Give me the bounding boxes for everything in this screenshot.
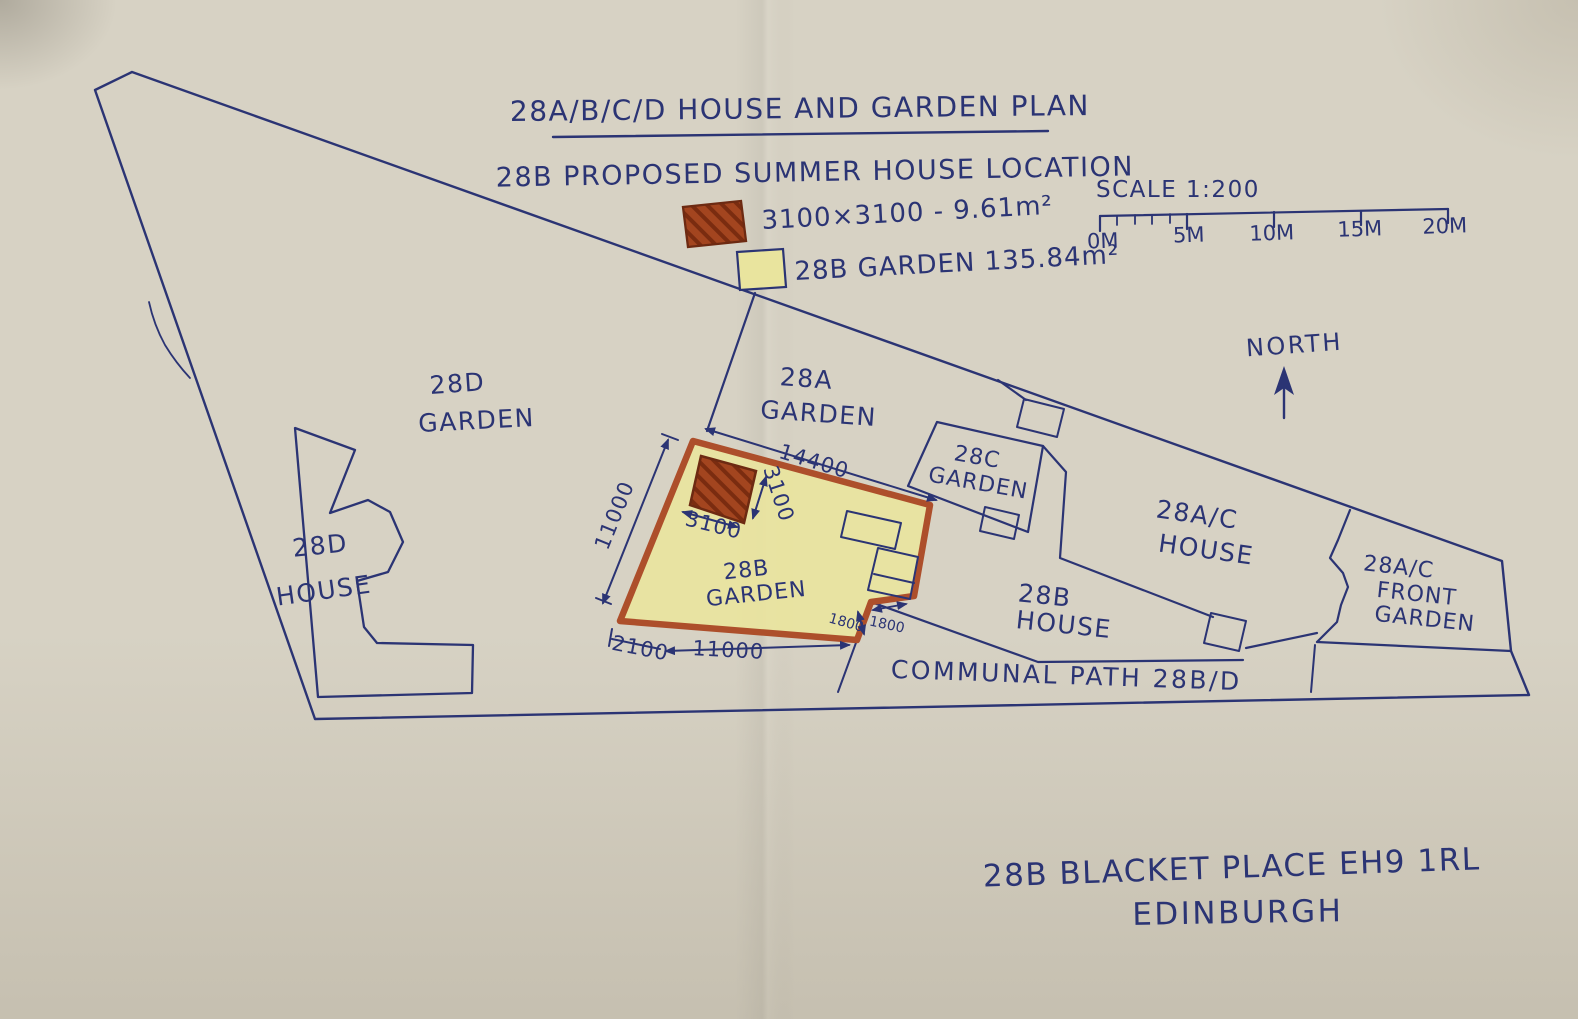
legend-garden-swatch xyxy=(737,249,786,290)
dim-garden-bottom: 11000 xyxy=(692,636,765,664)
plan-photo: 14400 11000 3100 3100 2100 11000 1800 18… xyxy=(0,0,1578,1019)
site-plan-drawing: 14400 11000 3100 3100 2100 11000 1800 18… xyxy=(0,0,1578,1019)
label-28a-garden: 28A xyxy=(779,362,834,395)
scale-tick-5: 5M xyxy=(1173,222,1205,247)
label-28d-house: 28D xyxy=(291,528,349,563)
scale-tick-0: 0M xyxy=(1087,228,1119,253)
address-line2: EDINBURGH xyxy=(1132,893,1344,933)
scale-label: SCALE 1:200 xyxy=(1096,177,1260,203)
scale-tick-10: 10M xyxy=(1249,220,1295,246)
scale-tick-15: 15M xyxy=(1337,216,1383,242)
scale-tick-20: 20M xyxy=(1422,213,1468,239)
label-28d-garden-2: GARDEN xyxy=(418,403,536,438)
label-28d-garden: 28D xyxy=(429,367,486,400)
plan-title: 28A/B/C/D HOUSE AND GARDEN PLAN xyxy=(510,89,1090,128)
legend-summer-house-swatch xyxy=(683,201,746,247)
